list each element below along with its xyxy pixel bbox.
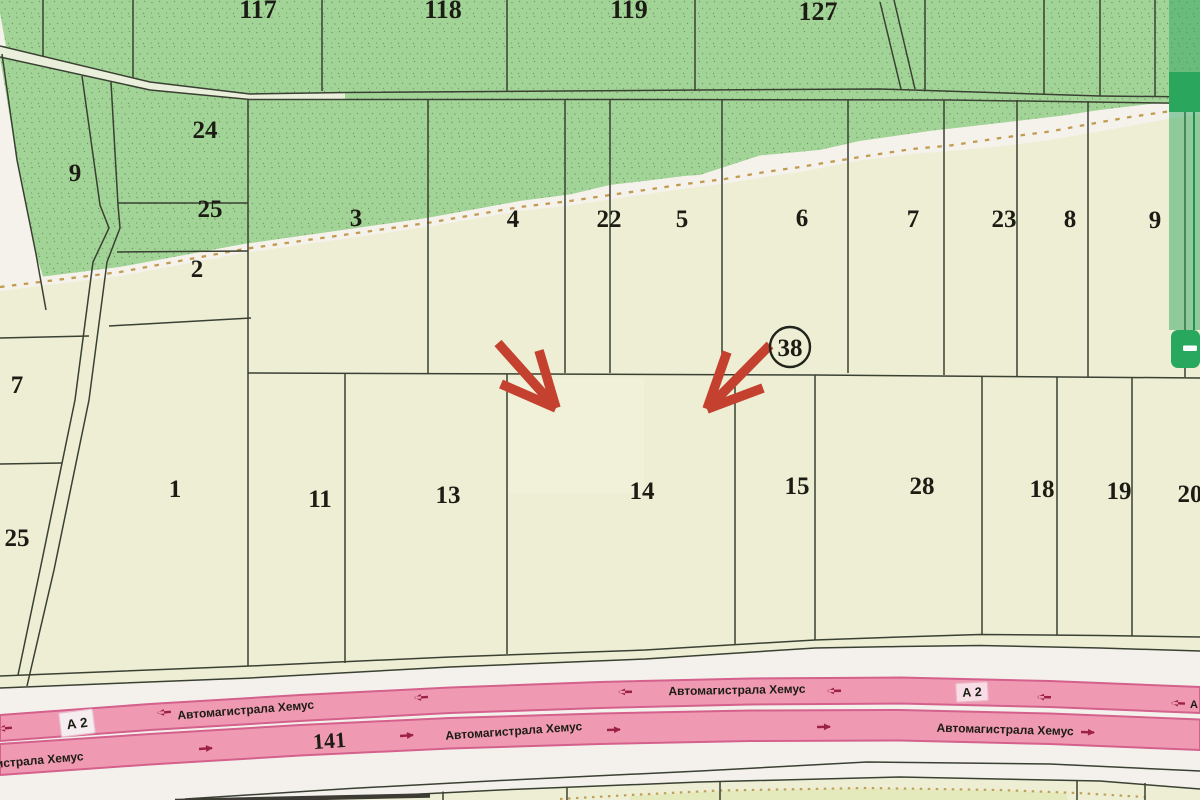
svg-text:7: 7 [11,372,24,399]
svg-text:38: 38 [778,335,803,362]
svg-text:9: 9 [1149,207,1162,234]
svg-text:А 2: А 2 [66,715,89,732]
svg-text:20: 20 [1178,481,1200,508]
svg-text:25: 25 [5,525,30,552]
svg-text:А: А [1190,699,1198,711]
svg-text:5: 5 [676,206,689,233]
svg-text:Автомагистрала Хемус: Автомагистрала Хемус [668,682,806,698]
svg-text:118: 118 [424,0,462,24]
svg-text:127: 127 [799,0,838,26]
svg-text:6: 6 [796,205,809,232]
svg-text:7: 7 [907,206,920,233]
svg-text:18: 18 [1030,476,1055,503]
svg-text:25: 25 [198,196,223,223]
svg-text:1: 1 [169,476,182,503]
svg-text:28: 28 [910,473,935,500]
svg-text:23: 23 [992,206,1017,233]
svg-text:24: 24 [193,117,219,144]
svg-text:А 2: А 2 [962,685,982,700]
svg-text:119: 119 [610,0,648,24]
svg-text:4: 4 [507,206,520,233]
svg-text:2: 2 [191,256,204,283]
svg-text:15: 15 [785,473,810,500]
svg-text:117: 117 [239,0,277,24]
svg-text:19: 19 [1107,478,1132,505]
svg-text:9: 9 [69,160,82,187]
svg-text:3: 3 [350,205,363,232]
svg-text:14: 14 [630,478,656,505]
svg-text:141: 141 [312,727,347,754]
svg-text:13: 13 [436,482,461,509]
svg-text:8: 8 [1064,206,1077,233]
svg-text:11: 11 [308,486,332,513]
svg-text:22: 22 [597,206,622,233]
